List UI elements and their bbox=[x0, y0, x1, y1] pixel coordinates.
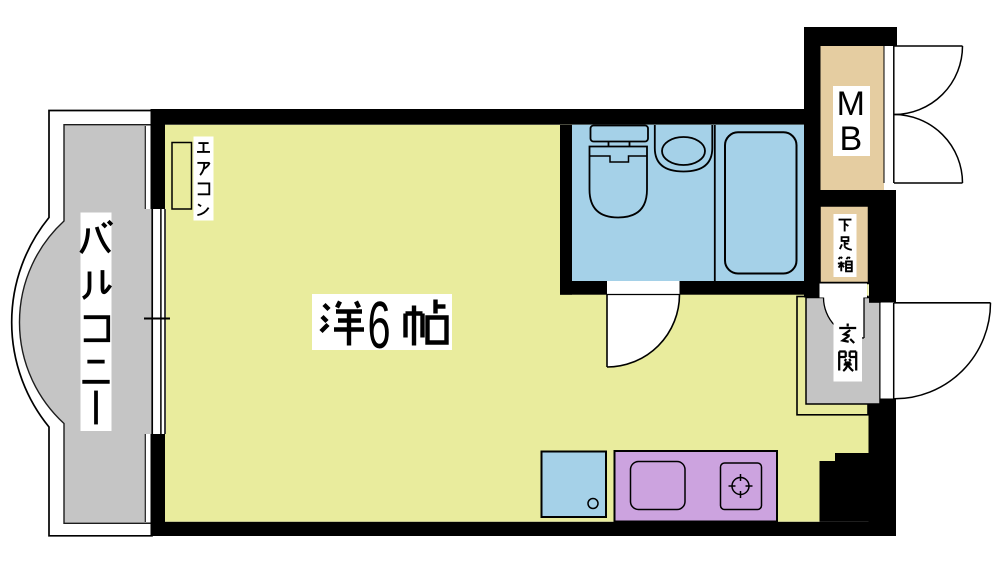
svg-text:B: B bbox=[839, 120, 862, 158]
svg-text:6: 6 bbox=[367, 288, 390, 363]
svg-text:M: M bbox=[837, 85, 865, 123]
